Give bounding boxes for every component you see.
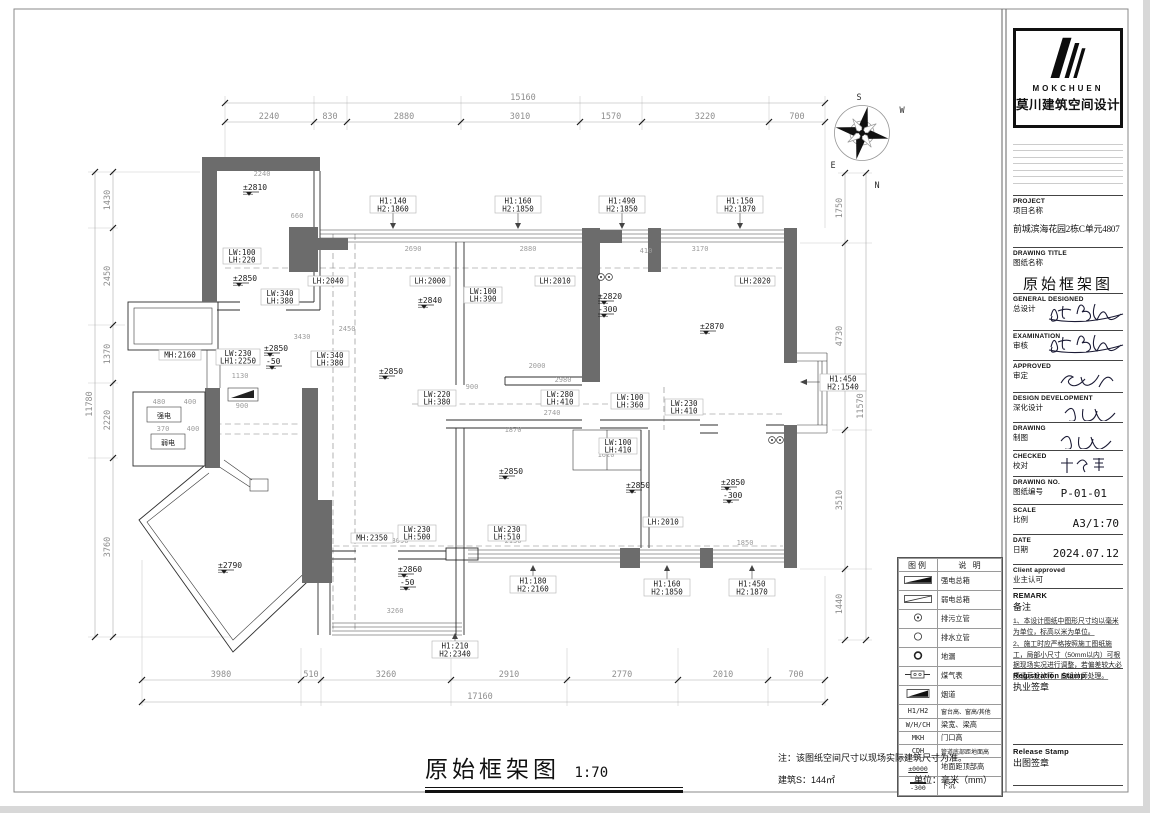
svg-text:±2850: ±2850	[264, 344, 288, 353]
compass-west: W	[899, 106, 905, 116]
svg-text:±2860: ±2860	[398, 565, 422, 574]
revision-rules	[1013, 138, 1123, 185]
svg-text:1850: 1850	[737, 539, 754, 547]
svg-text:±2850: ±2850	[626, 481, 650, 490]
weak-electric-box-icon	[903, 594, 933, 604]
dim-label: 2220	[103, 410, 113, 430]
sign-row-examination: EXAMINATION 审核	[1013, 330, 1123, 360]
svg-text:LH:2040: LH:2040	[312, 277, 344, 286]
dim-label: 4730	[835, 326, 845, 346]
dim-label: 830	[322, 112, 337, 122]
legend-row: W/H/CH 梁宽、梁高	[899, 718, 1002, 731]
gas-meter-icon	[903, 669, 933, 680]
strong-electric-label: 强电	[157, 411, 171, 420]
svg-text:±2840: ±2840	[418, 296, 442, 305]
svg-text:900: 900	[466, 383, 479, 391]
legend-header: 图例 说 明	[899, 559, 1002, 572]
sewage-riser-icon	[903, 612, 933, 623]
svg-text:-300: -300	[723, 491, 742, 500]
dim-label: 2880	[394, 112, 414, 122]
title-underline	[425, 787, 683, 788]
sheet-notes: 注：该图纸空间尺寸以现场实际建筑尺寸为准。 建筑S：144㎡ 单位：毫米（mm）	[778, 751, 992, 786]
dim-label: 2770	[612, 670, 632, 680]
legend-row: H1/H2 窗台高、窗高/其他	[899, 705, 1002, 718]
dim-label: 700	[789, 112, 804, 122]
svg-text:2690: 2690	[405, 245, 422, 253]
svg-text:LH:500: LH:500	[403, 533, 431, 542]
svg-text:2880: 2880	[520, 245, 537, 253]
svg-text:LH:2010: LH:2010	[647, 518, 679, 527]
unit-text: 单位：毫米（mm）	[914, 773, 992, 786]
dim-total-top: 15160	[510, 93, 536, 103]
sign-row-general-designed: GENERAL DESIGNED 总设计	[1013, 293, 1123, 330]
dim-label: 3010	[510, 112, 530, 122]
svg-text:2980: 2980	[555, 376, 572, 384]
svg-text:-300: -300	[598, 305, 617, 314]
dim-total-left: 11780	[85, 391, 95, 417]
svg-text:LH:410: LH:410	[604, 446, 632, 455]
svg-text:LH:510: LH:510	[493, 533, 521, 542]
area-text: 建筑S：144㎡	[778, 773, 835, 786]
pipe-riser-icons	[598, 274, 784, 444]
dim-label: 2910	[499, 670, 519, 680]
svg-text:H2:1870: H2:1870	[724, 205, 756, 214]
compass-north: N	[874, 181, 879, 191]
signature	[1057, 367, 1117, 391]
sign-row-approved: APPROVED 审定	[1013, 360, 1123, 392]
registration-stamp-section: Registration Stamp 执业签章	[1013, 668, 1123, 744]
sign-row-design-development: DESIGN DEVELOPMENT 深化设计	[1013, 392, 1123, 422]
scan-edge-bottom	[0, 806, 1150, 813]
flue-icon	[228, 388, 258, 401]
company-logo: MOKCHUEN 莫川建筑空间设计	[1013, 28, 1123, 128]
signature	[1057, 427, 1115, 449]
svg-text:±2850: ±2850	[379, 367, 403, 376]
drawing-sheet: 15160 2240 830 2880 3010 1570 3220 700 1…	[0, 0, 1150, 813]
dim-total-right: 11570	[856, 393, 866, 419]
weak-electric-label: 弱电	[161, 438, 175, 447]
legend-row: 弱电总箱	[899, 591, 1002, 610]
floor-drain-icon	[903, 650, 933, 661]
svg-text:LH:220: LH:220	[228, 256, 256, 265]
svg-text:LH:2020: LH:2020	[739, 277, 771, 286]
svg-text:3260: 3260	[387, 607, 404, 615]
signature	[1045, 298, 1127, 326]
dim-label: 1430	[103, 190, 113, 210]
svg-text:-50: -50	[400, 578, 415, 587]
legend-row: 排污立管	[899, 610, 1002, 629]
svg-text:1870: 1870	[505, 426, 522, 434]
remark-section: REMARK 备注 1、本设计图纸中图形尺寸均以毫米为单位，标高以米为单位。 2…	[1013, 588, 1123, 668]
sheet-title-text: 原始框架图	[425, 757, 560, 782]
legend-row: 排水立管	[899, 629, 1002, 648]
svg-text:H2:1850: H2:1850	[651, 588, 683, 597]
project-name: 前城滨海花园2栋C单元4807	[1013, 222, 1123, 235]
svg-text:MH:2350: MH:2350	[356, 534, 388, 543]
svg-text:H2:2340: H2:2340	[439, 650, 471, 659]
brand-name: MOKCHUEN	[1016, 84, 1120, 93]
project-label-cn: 项目名称	[1013, 205, 1123, 216]
svg-text:LH:380: LH:380	[423, 398, 451, 407]
dim-label: 1570	[601, 112, 621, 122]
scale-row: SCALE 比例 A3/1:70	[1013, 504, 1123, 534]
svg-text:±2850: ±2850	[499, 467, 523, 476]
sheet-title: 原始框架图 1:70	[425, 750, 695, 793]
svg-text:H2:1850: H2:1850	[502, 205, 534, 214]
drain-riser-icon	[903, 631, 933, 642]
sign-row-drawing: DRAWING 制图	[1013, 422, 1123, 450]
logo-stripes-icon	[1048, 36, 1088, 78]
dim-label: 3260	[376, 670, 396, 680]
svg-text:480: 480	[153, 398, 166, 406]
signature	[1057, 453, 1113, 475]
dim-label: 700	[788, 670, 803, 680]
svg-text:±2870: ±2870	[700, 322, 724, 331]
dim-label: 1370	[103, 344, 113, 364]
title-underline-thick	[425, 790, 683, 793]
drawing-number: P-01-01	[1061, 487, 1107, 500]
legend-row: 煤气表	[899, 667, 1002, 686]
brand-name-cn: 莫川建筑空间设计	[1016, 94, 1120, 113]
svg-text:400: 400	[187, 425, 200, 433]
lintel-labels: LW:100LH:220 LW:340LH:380 LW:230LH1:2250…	[216, 248, 703, 542]
drawing-title-section: DRAWING TITLE 图纸名称 原始框架图	[1013, 247, 1123, 293]
svg-text:±2790: ±2790	[218, 561, 242, 570]
signature	[1045, 329, 1127, 357]
svg-text:2000: 2000	[529, 362, 546, 370]
svg-text:LH:390: LH:390	[469, 295, 497, 304]
signature	[1061, 399, 1119, 421]
svg-text:900: 900	[236, 402, 249, 410]
drawing-no-row: DRAWING NO. 图纸编号 P-01-01	[1013, 476, 1123, 504]
svg-text:H2:1850: H2:1850	[606, 205, 638, 214]
svg-text:2740: 2740	[544, 409, 561, 417]
svg-text:LH:410: LH:410	[546, 398, 574, 407]
drawing-title: 原始框架图	[1013, 273, 1123, 294]
project-label-en: PROJECT	[1013, 198, 1123, 205]
svg-text:±2850: ±2850	[233, 274, 257, 283]
dim-label: 2010	[713, 670, 733, 680]
flue-icon	[903, 688, 933, 699]
svg-text:LH:2010: LH:2010	[539, 277, 571, 286]
svg-text:H2:2160: H2:2160	[517, 585, 549, 594]
scale-value: A3/1:70	[1073, 517, 1119, 530]
dim-label: 3220	[695, 112, 715, 122]
walls-thin	[128, 171, 827, 652]
dim-label: 2240	[259, 112, 279, 122]
svg-text:1130: 1130	[232, 372, 249, 380]
drawing-title-label-en: DRAWING TITLE	[1013, 250, 1123, 257]
svg-text:H2:1870: H2:1870	[736, 588, 768, 597]
door-labels: MH:2160 MH:2350	[159, 350, 393, 543]
svg-text:H2:1540: H2:1540	[827, 383, 859, 392]
svg-text:MH:2160: MH:2160	[164, 351, 196, 360]
drawing-title-label-cn: 图纸名称	[1013, 257, 1123, 268]
strong-electric-box-icon	[903, 575, 933, 585]
client-approved-row: Client approved 业主认可	[1013, 564, 1123, 588]
dim-label: 2450	[103, 266, 113, 286]
project-section: PROJECT 项目名称 前城滨海花园2栋C单元4807	[1013, 195, 1123, 247]
dim-label: 3510	[835, 490, 845, 510]
title-block: MOKCHUEN 莫川建筑空间设计 PROJECT 项目名称 前城滨海花园2栋C…	[1002, 9, 1128, 792]
svg-text:LH:380: LH:380	[316, 359, 344, 368]
legend-row: 烟道	[899, 686, 1002, 705]
legend-row: 强电总箱	[899, 572, 1002, 591]
walls-poche	[202, 157, 797, 583]
legend-row: 地漏	[899, 648, 1002, 667]
svg-text:±2820: ±2820	[598, 292, 622, 301]
svg-text:3430: 3430	[294, 333, 311, 341]
svg-text:LH:2000: LH:2000	[414, 277, 446, 286]
dim-total-bottom: 17160	[467, 692, 493, 702]
dim-label: 510	[303, 670, 318, 680]
dim-label: 1440	[835, 594, 845, 614]
svg-text:H2:1860: H2:1860	[377, 205, 409, 214]
svg-text:LH:360: LH:360	[616, 401, 644, 410]
date-row: DATE 日期 2024.07.12	[1013, 534, 1123, 564]
compass-east: E	[830, 161, 835, 171]
date-value: 2024.07.12	[1053, 547, 1119, 560]
svg-text:±2810: ±2810	[243, 183, 267, 192]
svg-text:2240: 2240	[254, 170, 271, 178]
svg-text:LH:380: LH:380	[266, 297, 294, 306]
svg-text:-50: -50	[266, 357, 281, 366]
sign-row-checked: CHECKED 校对	[1013, 450, 1123, 476]
svg-text:410: 410	[640, 247, 653, 255]
svg-text:3170: 3170	[692, 245, 709, 253]
svg-text:LH1:2250: LH1:2250	[220, 357, 257, 366]
dim-label: 3980	[211, 670, 231, 680]
scan-edge-right	[1143, 0, 1150, 813]
legend-row: MKH 门口高	[899, 731, 1002, 744]
dim-label: 1750	[835, 198, 845, 218]
compass-south: S	[856, 93, 861, 103]
svg-text:±2850: ±2850	[721, 478, 745, 487]
release-stamp-section: Release Stamp 出图签章	[1013, 744, 1123, 799]
note-text: 注：该图纸空间尺寸以现场实际建筑尺寸为准。	[778, 751, 992, 764]
compass-rose-icon: S W E N	[830, 93, 905, 191]
sheet-scale: 1:70	[574, 765, 608, 781]
svg-text:400: 400	[184, 398, 197, 406]
svg-text:660: 660	[291, 212, 304, 220]
svg-text:370: 370	[157, 425, 170, 433]
dim-label: 3760	[103, 537, 113, 557]
svg-text:2450: 2450	[339, 325, 356, 333]
svg-text:LH:410: LH:410	[670, 407, 698, 416]
